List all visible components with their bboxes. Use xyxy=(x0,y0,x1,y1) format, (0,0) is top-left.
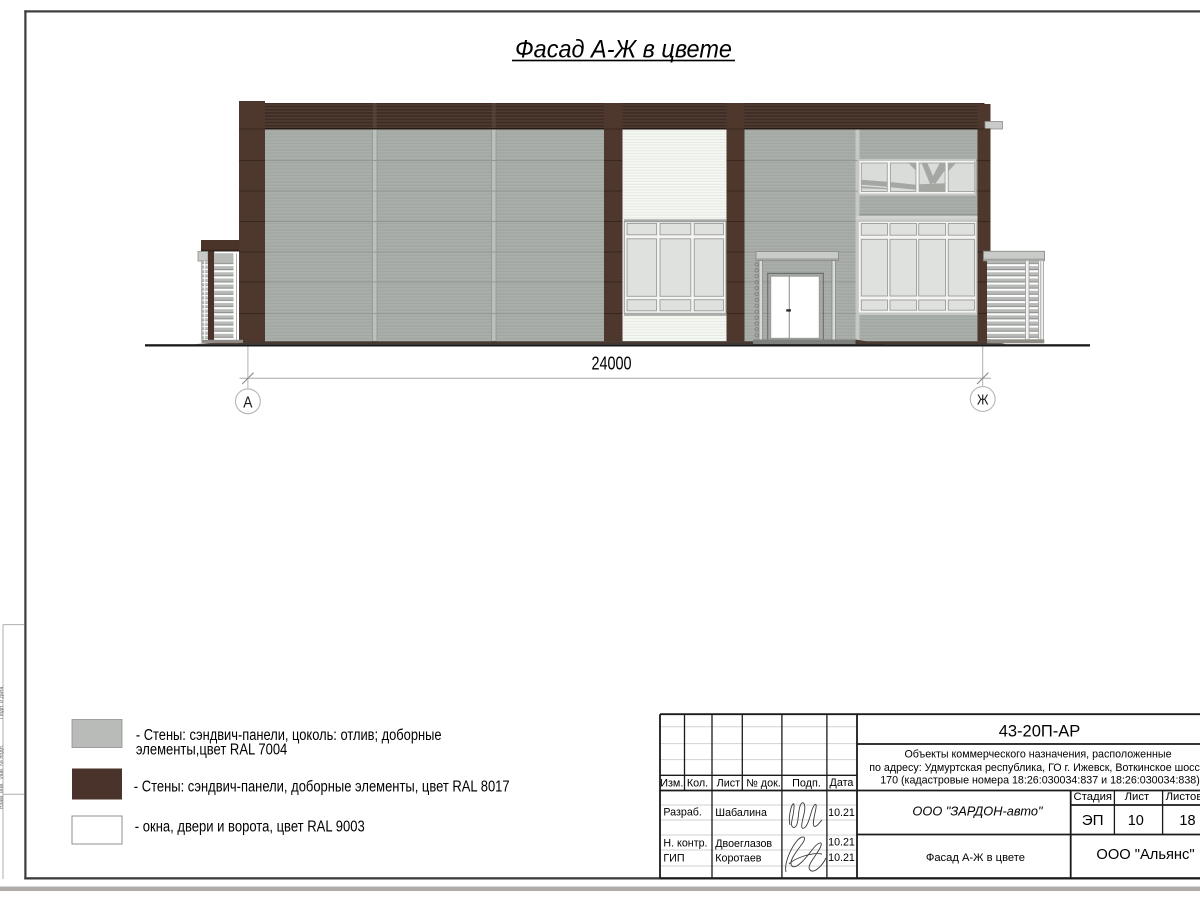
svg-text:170 (кадастровые номера 18:26:: 170 (кадастровые номера 18:26:030034:837… xyxy=(880,775,1200,787)
svg-text:Шабалина: Шабалина xyxy=(715,807,767,819)
svg-text:А: А xyxy=(243,394,252,411)
svg-text:Изм.: Изм. xyxy=(660,777,683,789)
svg-text:10.21: 10.21 xyxy=(828,852,855,864)
svg-text:Лист: Лист xyxy=(1125,791,1150,803)
svg-text:по адресу: Удмуртская республи: по адресу: Удмуртская республика, ГО г. … xyxy=(869,762,1200,774)
svg-text:Листов: Листов xyxy=(1166,791,1200,803)
svg-text:ООО "Альянс": ООО "Альянс" xyxy=(1096,847,1194,863)
svg-text:24000: 24000 xyxy=(592,354,632,374)
svg-text:- Стены: сэндвич-панели, добор: - Стены: сэндвич-панели, доборные элемен… xyxy=(134,778,510,795)
svg-text:18: 18 xyxy=(1179,813,1195,829)
svg-text:- окна, двери и ворота, цвет R: - окна, двери и ворота, цвет RAL 9003 xyxy=(135,819,365,836)
svg-text:Ж: Ж xyxy=(977,392,989,408)
svg-text:10.21: 10.21 xyxy=(828,837,855,849)
svg-text:10: 10 xyxy=(1128,813,1144,829)
svg-text:43-20П-АР: 43-20П-АР xyxy=(999,723,1081,741)
svg-text:Н. контр.: Н. контр. xyxy=(663,838,707,850)
svg-text:элементы,цвет RAL 7004: элементы,цвет RAL 7004 xyxy=(136,742,288,759)
svg-text:Кол.: Кол. xyxy=(687,777,708,789)
svg-text:Инв. № подл.: Инв. № подл. xyxy=(0,744,5,779)
svg-text:Коротаев: Коротаев xyxy=(715,853,761,865)
svg-text:Стадия: Стадия xyxy=(1074,791,1113,803)
svg-text:10.21: 10.21 xyxy=(828,807,855,819)
svg-text:Разраб.: Разраб. xyxy=(663,807,701,819)
svg-text:Подп. и дата: Подп. и дата xyxy=(0,686,5,719)
svg-text:Взам. инв.: Взам. инв. xyxy=(0,782,5,809)
svg-text:ООО "ЗАРДОН-авто": ООО "ЗАРДОН-авто" xyxy=(912,804,1044,819)
svg-text:Дата: Дата xyxy=(830,777,854,789)
svg-text:Лист: Лист xyxy=(717,777,741,789)
svg-text:ЭП: ЭП xyxy=(1082,812,1104,829)
svg-text:Фасад А-Ж в цвете: Фасад А-Ж в цвете xyxy=(515,36,732,64)
svg-text:Объекты коммерческого назначен: Объекты коммерческого назначения, распол… xyxy=(904,749,1171,761)
svg-text:Подп.: Подп. xyxy=(792,777,821,789)
svg-text:ГИП: ГИП xyxy=(663,852,684,864)
svg-text:Фасад А-Ж в цвете: Фасад А-Ж в цвете xyxy=(926,852,1025,864)
svg-text:Двоеглазов: Двоеглазов xyxy=(715,838,772,850)
svg-text:№ док.: № док. xyxy=(746,777,781,789)
